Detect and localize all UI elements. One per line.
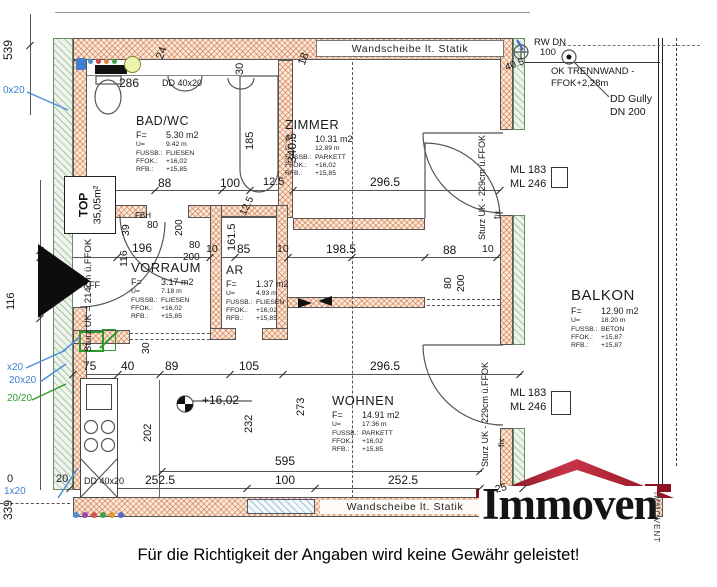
dim-label: 539 (2, 40, 14, 60)
dim-label: 0 (7, 474, 13, 485)
wall-balcony-a2 (513, 38, 525, 130)
dim-label: FBH (135, 212, 151, 220)
dim-label: Sturz UK - 229cm ü.FFOK (481, 362, 490, 467)
room-detail: U=18.20 m (571, 317, 639, 325)
room-title: BALKON (571, 287, 639, 304)
utility-dot (100, 512, 106, 518)
room-block-ar: ARF=1.37 m2U=4.93 mFUSSB.:FLIESENFFOK.:+… (226, 263, 289, 323)
room-detail: U=4.93 m (226, 290, 289, 298)
dim-label: 10 (482, 244, 494, 255)
dim-label: 116 (119, 250, 130, 267)
dim-label: 30 (141, 342, 152, 354)
room-block-wohnen: WOHNENF=14.91 m2U=17.36 mFUSSB.:PARKETTF… (332, 393, 400, 454)
dim-label: 252.5 (388, 474, 418, 486)
balcony-top-line (525, 62, 660, 63)
utility-dot (112, 59, 117, 64)
lamp-icon (124, 56, 141, 73)
room-detail: FUSSB.:FLIESEN (226, 299, 289, 307)
unit-area: 35,05m² (91, 186, 103, 225)
dim-label: x20 (7, 363, 23, 373)
room-block-vorraum: VORRAUMF=3.17 m2U=7.18 mFUSSB.:FLIESENFF… (131, 260, 201, 321)
dim-label: 100 (540, 48, 556, 58)
dim-label: 80 (189, 241, 200, 251)
dim-label: FFOK+2,28m (551, 79, 608, 89)
room-detail: FFOK.:+15,87 (571, 334, 639, 342)
room-detail: U=12.89 m (285, 145, 353, 153)
room-detail: RFB.:+15,85 (332, 446, 400, 454)
dim-label: 232 (244, 415, 255, 433)
wall-label-bottom: Wandscheibe lt. Statik (320, 500, 490, 514)
wall-zimmer-bottom (293, 218, 425, 230)
dim-label: 202 (143, 424, 154, 442)
dim-line (73, 374, 522, 375)
room-block-zimmer: ZIMMERF=10.31 m2U=12.89 mFUSSB.:PARKETTF… (285, 117, 353, 178)
property-line (676, 38, 677, 466)
wall-label-top: Wandscheibe lt. Statik (316, 40, 504, 57)
dim-label: fix (497, 439, 506, 448)
utility-dot (118, 512, 124, 518)
dim-label: 0x20 (3, 86, 25, 96)
washer-top (95, 65, 127, 74)
wall-ar-bottom-b (262, 328, 288, 340)
dim-label: 339 (2, 500, 14, 520)
utility-dot (109, 512, 115, 518)
utility-dot (91, 512, 97, 518)
room-detail: F=1.37 m2 (226, 279, 289, 290)
pipe-box-green2 (102, 329, 116, 351)
wall-hall-wohnen (287, 297, 425, 308)
wall-balcony-b (500, 215, 513, 345)
room-detail: FUSSB.:PARKETT (332, 430, 400, 438)
sturz-dash (130, 339, 210, 340)
dim-label: 200 (175, 219, 185, 236)
dim-label: 20x20 (9, 376, 36, 386)
kitchen-sink (86, 384, 112, 410)
room-detail: F=3.17 m2 (131, 277, 201, 288)
room-detail: RFB.:+15,85 (285, 170, 353, 178)
dim-label: 80 (443, 277, 454, 289)
dim-line (40, 180, 41, 490)
room-detail: F=10.31 m2 (285, 134, 353, 145)
dim-label: 85 (237, 243, 250, 255)
room-detail: F=12.90 m2 (571, 306, 639, 317)
dim-label: DD 40x20 (162, 79, 202, 88)
logo-wordmark: Immoven (482, 482, 657, 527)
dim-label: 1x20 (4, 487, 26, 497)
dim-label: 105 (239, 360, 259, 372)
unit-label: TOP (77, 186, 91, 225)
dim-label: OK TRENNWAND - (551, 67, 634, 77)
dim-label: 18 (297, 51, 312, 66)
room-detail: RFB.:+15,85 (226, 315, 289, 323)
room-detail: F=14.91 m2 (332, 410, 400, 421)
room-detail: U=17.36 m (332, 421, 400, 429)
dim-label: +16,02 (202, 394, 239, 406)
unit-info-box: TOP 35,05m² (64, 176, 116, 234)
room-detail: FUSSB.:FLIESEN (136, 150, 199, 158)
utility-dot (104, 59, 109, 64)
dim-label: 10 (277, 244, 289, 255)
dim-label: 296.5 (370, 176, 400, 188)
dim-label: 296.5 (370, 360, 400, 372)
dim-label: 196 (132, 242, 152, 254)
dim-label: ML 183 (510, 165, 546, 176)
dim-label: ML 183 (510, 388, 546, 399)
frame-top-line (55, 12, 530, 13)
room-detail: FUSSB.:FLIESEN (131, 297, 201, 305)
room-detail: U=9.42 m (136, 141, 199, 149)
ml-box-top (551, 167, 568, 188)
room-block-badwc: BAD/WCF=5.30 m2U=9.42 mFUSSB.:FLIESENFFO… (136, 114, 199, 174)
wall-ar-left (210, 205, 222, 340)
dim-label: 39 (121, 224, 132, 236)
balcony-railing (658, 38, 663, 490)
dim-label: 198.5 (326, 243, 356, 255)
dim-label: Sturz UK - 229cm ü.FFOK (478, 135, 487, 240)
floor-plan: Wandscheibe lt. Statik Wandscheibe lt. S… (0, 0, 717, 587)
room-detail: FFOK.:+16,02 (131, 305, 201, 313)
room-detail: RFB.:+15,87 (571, 342, 639, 350)
dim-label: 12.5 (263, 177, 284, 188)
room-detail: RFB.:+15,85 (131, 313, 201, 321)
dim-label: 161.5 (227, 223, 238, 251)
dim-label: 185 (245, 132, 256, 150)
dim-label: 10 (206, 244, 218, 255)
wall-balcony-b2 (513, 215, 525, 345)
tap-icon (76, 58, 86, 70)
dim-line (160, 471, 482, 472)
dim-label: 116 (6, 292, 17, 310)
dim-label: ML 246 (510, 402, 546, 413)
dashdot-line (558, 45, 700, 46)
room-detail: FUSSB.:PARKETT (285, 154, 353, 162)
sturz-dash (427, 299, 500, 300)
utility-dot (73, 512, 79, 518)
room-detail: U=7.18 m (131, 288, 201, 296)
room-detail: RFB.:+15,85 (136, 166, 199, 174)
dim-label: 88 (443, 244, 456, 256)
dim-label: fix (493, 211, 502, 220)
room-detail: FFOK.:+16,02 (285, 162, 353, 170)
dim-line (30, 14, 31, 115)
wall-ar-bottom-a (210, 328, 236, 340)
dim-label: 100 (275, 474, 295, 486)
dim-label: 80 (147, 221, 158, 231)
dim-label: 273 (296, 398, 307, 416)
dim-label: 40 (121, 360, 134, 372)
utility-dot (88, 59, 93, 64)
dim-label: 286 (119, 77, 139, 89)
dim-label: DN 200 (610, 107, 646, 118)
room-title: WOHNEN (332, 393, 400, 408)
utility-dot (82, 512, 88, 518)
dim-label: 25 (494, 482, 508, 495)
wall-label-top-text: Wandscheibe lt. Statik (352, 43, 469, 55)
room-block-balkon: BALKONF=12.90 m2U=18.20 mFUSSB.:BETONFFO… (571, 287, 639, 350)
room-title: AR (226, 263, 289, 277)
dim-label: 89 (165, 360, 178, 372)
dim-label: 595 (275, 455, 295, 467)
dim-label: 200 (456, 274, 467, 292)
entrance-arrow-icon (38, 244, 90, 318)
dim-label: 88 (158, 177, 171, 189)
bad-shelf-line (87, 75, 240, 76)
dim-label: DD 40x20 (84, 477, 124, 486)
floorplan-canvas: Wandscheibe lt. Statik Wandscheibe lt. S… (0, 0, 717, 587)
sturz-dash (130, 333, 210, 334)
sturz-dash (427, 305, 500, 306)
room-detail: FFOK.:+16,02 (332, 438, 400, 446)
room-title: BAD/WC (136, 114, 199, 128)
dim-label: 75 (83, 360, 96, 372)
room-title: VORRAUM (131, 260, 201, 275)
window-bottom (247, 499, 315, 514)
dim-label: 20/20 (7, 394, 32, 404)
logo-vertical-text: IMMOVENT (652, 492, 661, 543)
dim-label: 252.5 (145, 474, 175, 486)
ml-box-bottom (551, 391, 571, 415)
dim-line (70, 488, 523, 489)
dim-label: ML 246 (510, 179, 546, 190)
dim-label: DD Gully (610, 94, 652, 105)
room-detail: FFOK.:+16,02 (136, 158, 199, 166)
room-detail: FFOK.:+16,02 (226, 307, 289, 315)
room-title: ZIMMER (285, 117, 353, 132)
disclaimer-text: Für die Richtigkeit der Angaben wird kei… (0, 546, 717, 565)
room-detail: FUSSB.:BETON (571, 326, 639, 334)
wall-label-bottom-text: Wandscheibe lt. Statik (347, 501, 464, 513)
dim-label: 30 (235, 63, 246, 75)
dim-label: 20 (56, 474, 68, 485)
utility-dot (96, 59, 101, 64)
room-detail: F=5.30 m2 (136, 130, 199, 141)
